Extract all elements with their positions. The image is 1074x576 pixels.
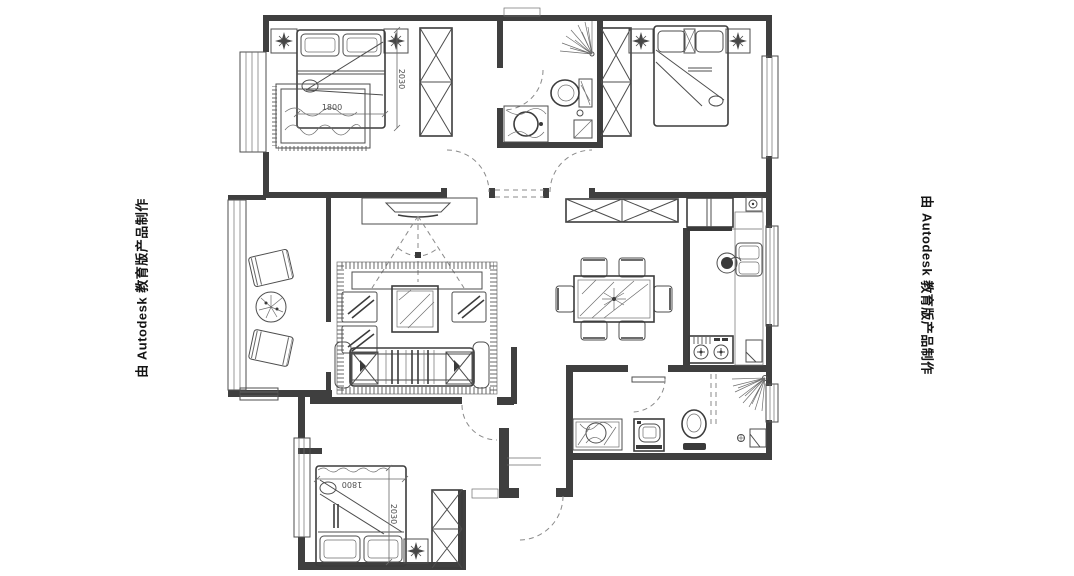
dining-table-icon [574, 276, 654, 322]
dining-chair-icon [581, 258, 607, 277]
kitchen-sink-icon [717, 243, 762, 276]
dining-chair-icon [619, 321, 645, 340]
pillow-icon [696, 31, 723, 52]
dim-label-depth: 2030 [389, 504, 398, 524]
sofa-icon [335, 272, 489, 388]
throw-blanket [446, 352, 472, 384]
nightstand-star-icon [629, 29, 653, 53]
door-swing-icon [503, 70, 543, 110]
wardrobe-icon [601, 28, 631, 136]
floor-drain-icon [746, 197, 762, 211]
dim-label-width: 1800 [342, 480, 362, 489]
pillow-icon [301, 34, 339, 56]
dining-chair-icon [556, 286, 574, 312]
plant-icon [256, 292, 286, 322]
window-icon [228, 200, 246, 390]
nightstand-star-icon [726, 29, 750, 53]
dim-label-width: 1800 [322, 103, 342, 112]
pillow-icon [343, 34, 381, 56]
gas-stove-icon [689, 336, 733, 363]
nightstand-star-icon [404, 539, 428, 563]
tv-icon [386, 203, 450, 217]
wash-basin-icon [504, 106, 548, 142]
dining-chair-icon [619, 258, 645, 277]
toilet-icon [682, 410, 706, 450]
nightstand-star-icon [384, 29, 408, 53]
dining-room [556, 199, 678, 340]
door-swing-icon [519, 496, 563, 540]
window-icon [762, 56, 778, 158]
lounge-chair-icon [248, 249, 294, 287]
bedroom-bottom: 1800 2030 [314, 465, 462, 568]
wardrobe-icon [432, 490, 462, 568]
lounge-chair-icon [248, 329, 293, 367]
floor-drain-icon [574, 110, 592, 138]
door-swing-icon [462, 405, 497, 440]
bathroom-top [504, 21, 594, 142]
shower-bench [750, 429, 766, 447]
throw-blanket [352, 352, 378, 384]
floor-plan-canvas: 1800 2030 [0, 0, 1074, 576]
rug-icon [272, 84, 370, 151]
counter [735, 212, 763, 365]
wash-basin-icon [573, 419, 622, 450]
nightstand-star-icon [271, 29, 297, 53]
corner-cabinet [746, 340, 762, 362]
window-icon [766, 226, 778, 326]
window-icon [240, 52, 266, 152]
dining-chair-icon [654, 286, 672, 312]
washing-machine-icon [634, 419, 664, 451]
bedroom-top-left: 1800 2030 [271, 27, 452, 151]
pillow-icon [658, 31, 685, 52]
toilet-icon [551, 79, 592, 107]
floor-drain-icon [738, 435, 745, 442]
coffee-table-icon [392, 286, 438, 332]
shower-spray-icon [560, 21, 594, 56]
tv-projection [372, 216, 464, 288]
dim-label-depth: 2030 [397, 69, 406, 89]
balcony [248, 249, 294, 367]
shower-partition [711, 374, 716, 428]
refrigerator-icon [687, 198, 733, 227]
window-icon [766, 384, 778, 422]
double-bed-icon [654, 26, 728, 126]
sideboard-icon [566, 199, 678, 222]
wardrobe-icon [420, 28, 452, 136]
shower-spray-icon [732, 376, 768, 412]
living-room [335, 198, 497, 394]
dining-chair-icon [581, 321, 607, 340]
bedroom-top-right [601, 26, 750, 136]
tv-niche [362, 198, 477, 224]
door-swing-icon [447, 150, 489, 192]
door-swing-icon [550, 150, 592, 192]
kitchen [687, 197, 763, 365]
bathroom-bottom [573, 374, 768, 451]
sliding-door-track [687, 227, 732, 231]
floor-plan-page: 由 Autodesk 教育版产品制作 由 Autodesk 教育版产品制作 [0, 0, 1074, 576]
door-swing-icon [632, 379, 665, 412]
